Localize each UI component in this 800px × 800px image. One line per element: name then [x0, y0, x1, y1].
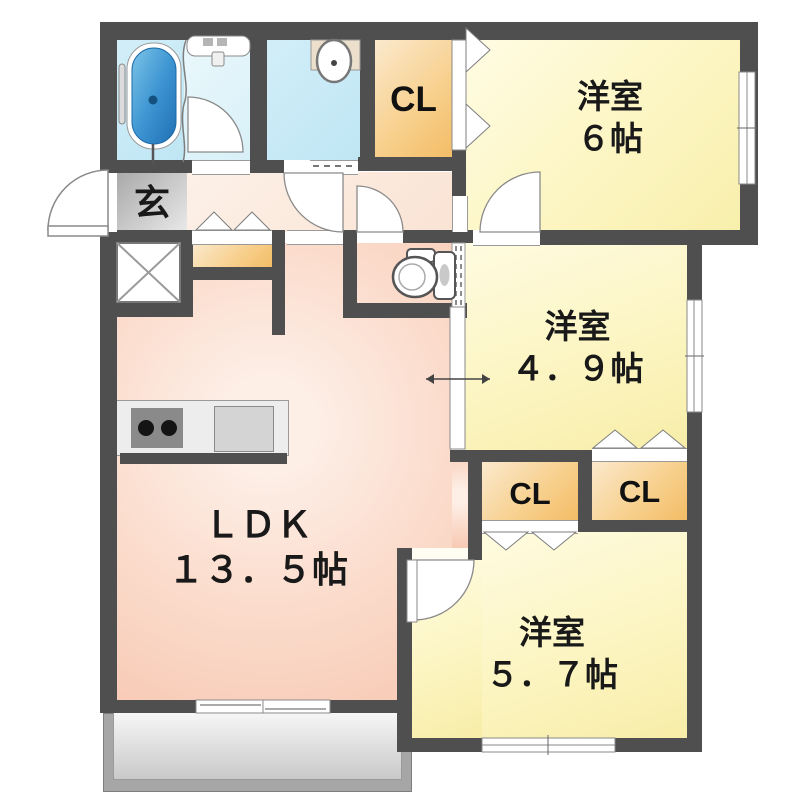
- powder-room: [267, 40, 360, 162]
- wall-north: [100, 22, 758, 40]
- closet-threshold: [592, 448, 687, 462]
- closet-left-label: CL: [482, 474, 578, 513]
- stove-icon: [131, 408, 183, 448]
- window-room57-south: [482, 735, 615, 755]
- room49-name: 洋室: [455, 306, 700, 348]
- wall: [272, 230, 285, 335]
- closet-threshold: [482, 520, 578, 534]
- wall-west: [100, 232, 117, 713]
- wall-west: [100, 22, 117, 173]
- room49-label: 洋室 ４．９帖: [455, 306, 700, 389]
- room6-label: 洋室 ６帖: [470, 76, 750, 159]
- threshold: [192, 230, 272, 245]
- wall-toilet-south: [343, 303, 467, 318]
- wall: [185, 267, 272, 280]
- floor-plan: 洋室 ６帖 洋室 ４．９帖 洋室 ５．７帖 ＬＤＫ １３．５帖 玄 CL CL …: [0, 0, 800, 800]
- window-ldk-balcony: [196, 700, 330, 713]
- ldk-size: １３．５帖: [108, 547, 408, 592]
- room57-name: 洋室: [422, 612, 682, 654]
- entrance-door-swing: [48, 170, 108, 230]
- entrance-door-leaf: [48, 226, 108, 236]
- kitchen-sink-icon: [214, 406, 274, 452]
- louver-window: [310, 160, 358, 175]
- wall: [468, 450, 482, 560]
- wall-toilet-west: [343, 243, 357, 305]
- room49-size: ４．９帖: [455, 348, 700, 390]
- wall: [452, 150, 466, 196]
- washroom: [184, 40, 250, 162]
- room6-size: ６帖: [470, 118, 750, 160]
- wall: [267, 160, 284, 173]
- ldk-label: ＬＤＫ １３．５帖: [108, 502, 408, 593]
- room57-label: 洋室 ５．７帖: [422, 612, 682, 695]
- room57-door-opening: [412, 548, 468, 560]
- wall-closet-divider: [578, 450, 592, 532]
- ldk-name: ＬＤＫ: [108, 502, 408, 547]
- balcony-floor: [113, 713, 402, 780]
- closet-right-label: CL: [592, 472, 687, 511]
- entrance-opening: [100, 173, 117, 232]
- wall: [250, 40, 267, 162]
- wall: [343, 230, 357, 243]
- bathroom: [117, 40, 184, 162]
- opening: [452, 196, 468, 232]
- wall-room6-south: [540, 230, 758, 245]
- wall-closet-bottom: [582, 520, 695, 532]
- wall-east-lower: [687, 532, 702, 752]
- kitchen-counter-edge: [120, 453, 287, 464]
- toilet-door-opening: [357, 230, 403, 243]
- pipe-space: [117, 243, 180, 302]
- room6-door-opening: [473, 230, 540, 246]
- closet-north-label: CL: [375, 78, 452, 122]
- threshold: [192, 160, 250, 175]
- door-opening: [284, 160, 310, 173]
- room57-size: ５．７帖: [422, 654, 682, 696]
- room6-name: 洋室: [470, 76, 750, 118]
- genkan-label: 玄: [117, 180, 187, 225]
- shoe-cabinet: [192, 243, 272, 267]
- room-ldk-east-patch: [452, 462, 468, 548]
- wall: [360, 40, 375, 160]
- wall: [180, 243, 193, 303]
- threshold-ldk-entry: [287, 230, 343, 245]
